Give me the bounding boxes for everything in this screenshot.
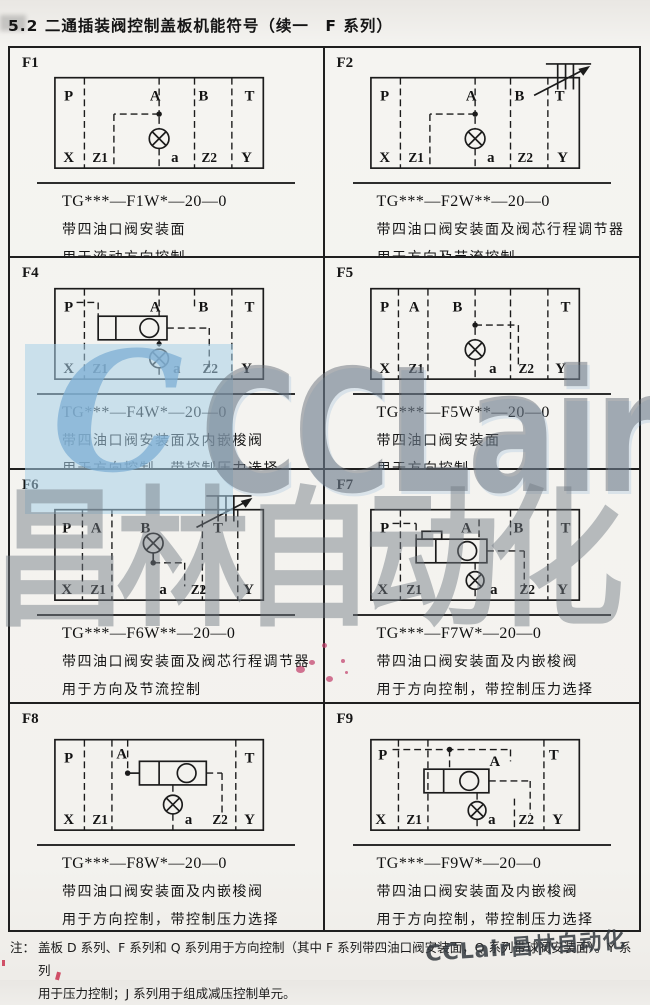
- port-label: A: [489, 754, 500, 770]
- model-code: TG***—F9W*—20—0: [377, 855, 640, 873]
- port-label: a: [487, 150, 495, 166]
- port-label: B: [513, 520, 523, 536]
- port-label: X: [64, 361, 75, 377]
- ink-blot: [296, 666, 305, 673]
- description-2: 用于方向控制，带控制压力选择: [377, 909, 640, 929]
- description-2: 用于方向控制: [377, 458, 640, 470]
- schematic-f7: P A B T X Z1 a Z2 Y: [365, 492, 599, 608]
- ink-blot: [309, 660, 315, 665]
- ink-blot: [345, 671, 348, 674]
- port-label: Z2: [517, 150, 533, 165]
- cell-f4: F4 P A B T X Z1 a Z2 Y TG***—F4W*—: [10, 258, 325, 470]
- port-label: a: [490, 582, 498, 598]
- cell-separator: [353, 182, 611, 184]
- cell-label: F7: [337, 477, 354, 494]
- port-label: Y: [557, 582, 568, 598]
- port-label: Y: [557, 150, 568, 166]
- port-label: X: [64, 812, 75, 828]
- footnote-line2: 用于压力控制；J 系列用于组成减压控制单元。: [38, 982, 642, 1005]
- port-label: Z1: [93, 361, 108, 376]
- port-label: Z2: [213, 812, 229, 827]
- port-label: A: [91, 520, 102, 536]
- port-label: Y: [242, 361, 253, 377]
- port-label: a: [171, 150, 179, 166]
- port-label: T: [560, 520, 570, 536]
- description-2: 用于方向控制，带控制压力选择: [62, 909, 323, 929]
- port-label: a: [185, 812, 193, 828]
- cell-separator: [353, 393, 611, 395]
- symbol-grid: F1 P A B T X Z1 a Z2 Y TG***—F1W*—20—0 带…: [10, 48, 639, 930]
- footnote: 注： 盖板 D 系列、F 系列和 Q 系列用于方向控制（其中 F 系列带四油口阀…: [10, 936, 642, 1005]
- port-label: P: [64, 299, 73, 315]
- cell-label: F8: [22, 711, 39, 728]
- port-label: B: [452, 299, 462, 315]
- description-1: 带四油口阀安装面及内嵌梭阀: [62, 881, 323, 901]
- description-1: 带四油口阀安装面: [62, 219, 323, 239]
- description-2: 用于液动方向控制: [62, 247, 323, 258]
- footnote-line1: 盖板 D 系列、F 系列和 Q 系列用于方向控制（其中 F 系列带四油口阀安装面…: [38, 936, 642, 982]
- model-code: TG***—F1W*—20—0: [62, 193, 323, 211]
- port-label: B: [141, 520, 151, 536]
- cell-label: F2: [337, 55, 354, 72]
- port-label: P: [380, 299, 389, 315]
- cell-f5: F5 P A B T X Z1 a Z2 Y TG***—F5W**—20—0 …: [325, 258, 640, 470]
- port-label: X: [379, 150, 390, 166]
- description-1: 带四油口阀安装面: [377, 430, 640, 450]
- description-1: 带四油口阀安装面及阀芯行程调节器: [62, 651, 323, 671]
- description-1: 带四油口阀安装面及阀芯行程调节器: [377, 219, 640, 239]
- description-1: 带四油口阀安装面及内嵌梭阀: [62, 430, 323, 450]
- port-label: X: [377, 582, 388, 598]
- port-label: Z2: [203, 361, 219, 376]
- port-label: Z2: [519, 582, 535, 597]
- cell-separator: [37, 844, 295, 846]
- cell-label: F1: [22, 55, 39, 72]
- port-label: Z1: [408, 150, 423, 165]
- port-label: T: [549, 747, 559, 763]
- port-label: X: [64, 150, 75, 166]
- port-label: A: [409, 299, 420, 315]
- schematic-f6: P A B T X Z1 a Z2 Y: [49, 492, 283, 608]
- description-2: 用于方向及节流控制: [62, 679, 323, 699]
- schematic-f5: P A B T X Z1 a Z2 Y: [365, 271, 599, 387]
- cell-f6: F6 P A B T X Z1 a Z2 Y TG***—F6W**—20—0: [10, 470, 325, 704]
- cell-separator: [37, 182, 295, 184]
- port-label: P: [380, 88, 389, 104]
- port-label: A: [150, 299, 161, 315]
- port-label: Z2: [202, 150, 218, 165]
- port-label: Y: [555, 361, 566, 377]
- port-label: Y: [552, 812, 563, 828]
- port-label: A: [117, 746, 128, 762]
- description-2: 用于方向控制，带控制压力选择: [377, 679, 640, 699]
- port-label: Y: [243, 582, 254, 598]
- port-label: P: [380, 520, 389, 536]
- model-code: TG***—F2W**—20—0: [377, 193, 640, 211]
- footnote-label: 注：: [10, 936, 35, 959]
- port-label: X: [375, 812, 386, 828]
- symbol-table: F1 P A B T X Z1 a Z2 Y TG***—F1W*—20—0 带…: [8, 46, 641, 932]
- shuttle-valve-icon: [424, 769, 489, 793]
- cell-label: F9: [337, 711, 354, 728]
- cell-separator: [37, 614, 295, 616]
- port-label: Z1: [408, 361, 423, 376]
- port-label: T: [554, 88, 564, 104]
- port-label: P: [64, 88, 73, 104]
- shuttle-valve-icon: [140, 761, 207, 785]
- port-label: Z2: [518, 361, 534, 376]
- model-code: TG***—F8W*—20—0: [62, 855, 323, 873]
- model-code: TG***—F7W*—20—0: [377, 625, 640, 643]
- port-label: X: [62, 582, 73, 598]
- cell-f7: F7 P A B T X Z1 a Z2 Y TG***—F7W*—: [325, 470, 640, 704]
- port-label: P: [64, 750, 73, 766]
- page-title: 5.2 二通插装阀控制盖板机能符号（续一 F 系列）: [8, 14, 393, 36]
- description-1: 带四油口阀安装面及内嵌梭阀: [377, 651, 640, 671]
- port-label: X: [379, 361, 390, 377]
- port-label: B: [199, 299, 209, 315]
- cell-f9: F9 P A T X Z1 a Z2 Y TG***—F9W*—20—0: [325, 704, 640, 930]
- model-code: TG***—F4W*—20—0: [62, 404, 323, 422]
- shuttle-valve-icon: [416, 539, 487, 563]
- port-label: Z1: [93, 812, 108, 827]
- port-label: A: [150, 88, 161, 104]
- schematic-f4: P A B T X Z1 a Z2 Y: [49, 271, 283, 387]
- ink-blot: [322, 643, 327, 648]
- port-label: a: [488, 812, 496, 828]
- port-label: T: [245, 750, 255, 766]
- port-label: Y: [244, 812, 255, 828]
- port-label: T: [213, 520, 223, 536]
- port-label: Z1: [91, 582, 106, 597]
- description-2: 用于方向及节流控制: [377, 247, 640, 258]
- port-label: T: [245, 88, 255, 104]
- port-label: P: [62, 520, 71, 536]
- port-label: Z2: [191, 582, 207, 597]
- port-label: Y: [242, 150, 253, 166]
- port-label: T: [245, 299, 255, 315]
- cell-label: F4: [22, 265, 39, 282]
- schematic-f8: P A T X Z1 a Z2 Y: [49, 722, 283, 838]
- port-label: A: [461, 520, 472, 536]
- schematic-f2: P A B T X Z1 a Z2 Y: [365, 60, 599, 176]
- cell-f8: F8 P A T X Z1 a Z2 Y TG***—F8W*—20—0: [10, 704, 325, 930]
- cell-label: F5: [337, 265, 354, 282]
- port-label: Z1: [93, 150, 108, 165]
- port-label: Z2: [518, 812, 534, 827]
- cell-label: F6: [22, 477, 39, 494]
- ink-tick: [2, 960, 5, 966]
- shuttle-valve-icon: [98, 316, 167, 340]
- port-label: a: [173, 361, 181, 377]
- schematic-f1: P A B T X Z1 a Z2 Y: [49, 60, 283, 176]
- ink-blot: [341, 659, 345, 663]
- port-label: B: [199, 88, 209, 104]
- port-label: Z1: [406, 582, 421, 597]
- model-code: TG***—F5W**—20—0: [377, 404, 640, 422]
- port-label: T: [560, 299, 570, 315]
- cell-separator: [353, 614, 611, 616]
- port-label: B: [514, 88, 524, 104]
- description-1: 带四油口阀安装面及内嵌梭阀: [377, 881, 640, 901]
- stroke-adjuster-icon: [197, 496, 253, 527]
- cell-separator: [353, 844, 611, 846]
- schematic-f9: P A T X Z1 a Z2 Y: [365, 722, 599, 838]
- port-label: a: [160, 582, 168, 598]
- ink-blot: [326, 676, 333, 682]
- model-code: TG***—F6W**—20—0: [62, 625, 323, 643]
- cell-f2: F2 P A B T X Z1 a Z2 Y TG***—F2W**—20—0: [325, 48, 640, 258]
- port-label: a: [489, 361, 497, 377]
- port-label: P: [378, 747, 387, 763]
- cell-separator: [37, 393, 295, 395]
- description-2: 用于方向控制，带控制压力选择: [62, 458, 323, 470]
- port-label: A: [466, 88, 477, 104]
- port-label: Z1: [406, 812, 421, 827]
- cell-f1: F1 P A B T X Z1 a Z2 Y TG***—F1W*—20—0 带…: [10, 48, 325, 258]
